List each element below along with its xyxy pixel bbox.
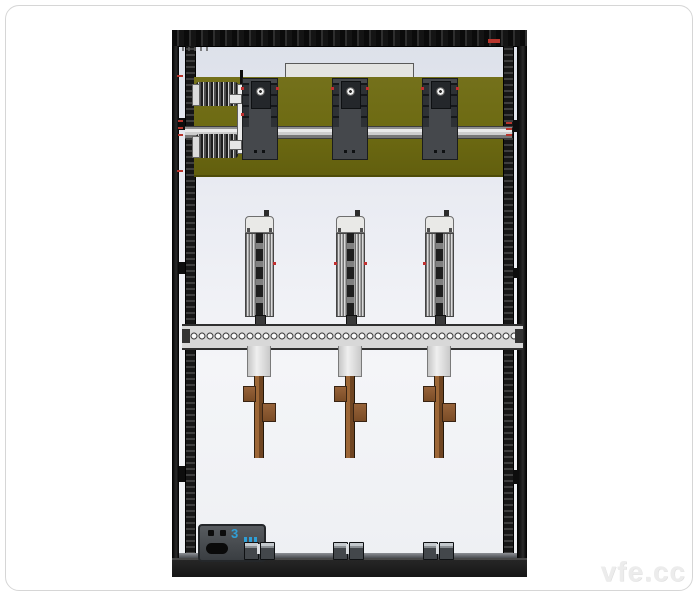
red-marker	[456, 87, 459, 90]
bracket-foot-lower	[229, 140, 242, 150]
clamp-gap	[436, 544, 439, 554]
red-marker	[241, 113, 244, 116]
red-marker	[423, 262, 426, 265]
copper-pad	[423, 386, 436, 402]
red-marker	[177, 170, 183, 172]
red-marker	[276, 87, 279, 90]
fuse-core-strip	[436, 233, 443, 315]
copper-pad	[334, 386, 347, 402]
copper-pad	[353, 403, 367, 422]
copper-pad	[442, 403, 456, 422]
clamp-screw	[344, 150, 347, 153]
clamp-hole	[346, 87, 355, 96]
red-marker	[488, 39, 500, 43]
red-marker	[273, 262, 276, 265]
cap-mark	[449, 228, 452, 232]
red-marker	[334, 262, 337, 265]
cap-mark	[269, 228, 272, 232]
fuse-assembly-3	[425, 216, 454, 327]
frame-tab	[513, 470, 519, 484]
fuse-assembly-1	[245, 216, 274, 327]
busbar-clamp-2	[332, 78, 368, 160]
cable-clamp	[260, 542, 275, 560]
red-marker	[506, 128, 512, 130]
rail-end-cap	[182, 329, 190, 343]
clamp-gap	[257, 544, 260, 554]
meter-display-window	[206, 543, 228, 554]
red-marker	[364, 262, 367, 265]
fuse-core-strip	[347, 233, 354, 315]
rail-holes	[190, 330, 515, 342]
clamp-screw	[254, 150, 257, 153]
frame-tab	[179, 262, 185, 274]
fuse-core-strip	[256, 233, 263, 315]
insulator-support-1	[247, 346, 271, 377]
red-marker	[506, 122, 512, 124]
frame-tab	[513, 268, 519, 278]
clamp-screw	[262, 150, 265, 153]
busbar-clamp-1	[242, 78, 278, 160]
rail-end-cap	[515, 329, 523, 343]
red-marker	[331, 87, 334, 90]
watermark: vfe.cc	[601, 556, 686, 588]
copper-pad	[262, 403, 276, 422]
red-marker	[178, 127, 183, 129]
connector-end-cap-lower	[192, 136, 200, 158]
red-marker	[241, 87, 244, 90]
red-marker	[506, 134, 512, 136]
red-marker	[178, 134, 183, 136]
meter-marking-label: 3	[231, 527, 238, 541]
frame-screw-specks	[182, 47, 210, 51]
cable-clamp	[349, 542, 364, 560]
connector-end-cap-upper	[192, 84, 200, 106]
red-marker	[178, 120, 183, 122]
copper-pad	[243, 386, 256, 402]
frame-tab	[179, 466, 185, 482]
cad-render-stage: 3 vfe.cc	[0, 0, 700, 600]
cable-clamp	[439, 542, 454, 560]
clamp-screw	[434, 150, 437, 153]
cap-mark	[427, 228, 430, 232]
clamp-screw	[442, 150, 445, 153]
clamp-gap	[346, 544, 349, 554]
clamp-hole	[436, 87, 445, 96]
electrical-cabinet: 3	[172, 30, 527, 575]
cap-mark	[360, 228, 363, 232]
cabinet-top-frame	[172, 30, 527, 47]
insulator-support-2	[338, 346, 362, 377]
frame-tab	[513, 120, 519, 132]
fuse-assembly-2	[336, 216, 365, 327]
clamp-hole	[256, 87, 265, 96]
red-marker	[366, 87, 369, 90]
cap-mark	[247, 228, 250, 232]
bracket-foot-upper	[229, 94, 242, 104]
red-marker	[421, 87, 424, 90]
frame-post-left	[172, 46, 179, 558]
cap-mark	[338, 228, 341, 232]
clamp-screw	[352, 150, 355, 153]
red-marker	[177, 75, 183, 77]
busbar-clamp-3	[422, 78, 458, 160]
meter-button	[220, 530, 226, 536]
insulator-support-3	[427, 346, 451, 377]
meter-button	[208, 530, 214, 536]
